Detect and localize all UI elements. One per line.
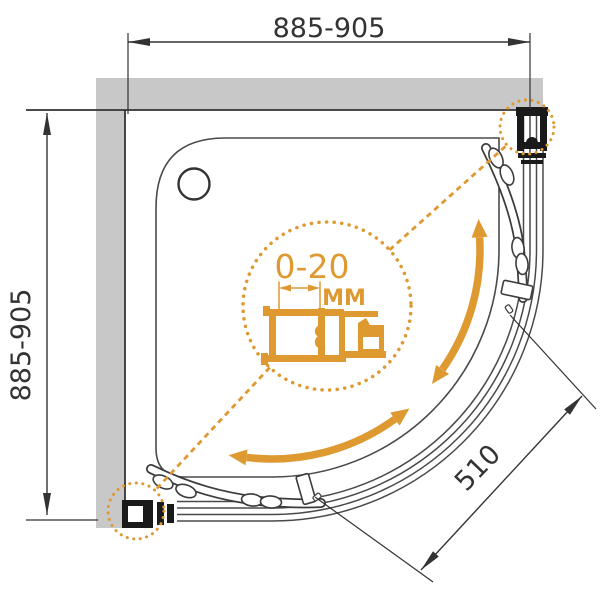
leader-line-top-right [390,145,508,250]
detail-range-label: 0-20 [275,247,350,286]
drain-icon [179,169,210,200]
dimension-left-label: 885-905 [6,289,37,402]
leader-line-bottom-left [155,368,270,491]
detail-unit-label: MM [322,286,366,311]
detail-circle: 0-20 MM [243,222,411,390]
dimension-top-label: 885-905 [273,13,386,44]
door-pin-right [505,304,514,313]
technical-drawing: 0-20 MM [0,0,613,600]
wall-profile-bottom-left [122,500,174,528]
wall-left [96,110,125,528]
door-swing-arrow-bottom-icon [229,409,410,466]
door-swing-arrow-right-icon [432,219,488,384]
wall-profile-top-right [516,107,548,164]
wall-top [96,78,543,110]
dimension-left: 885-905 [6,113,51,515]
